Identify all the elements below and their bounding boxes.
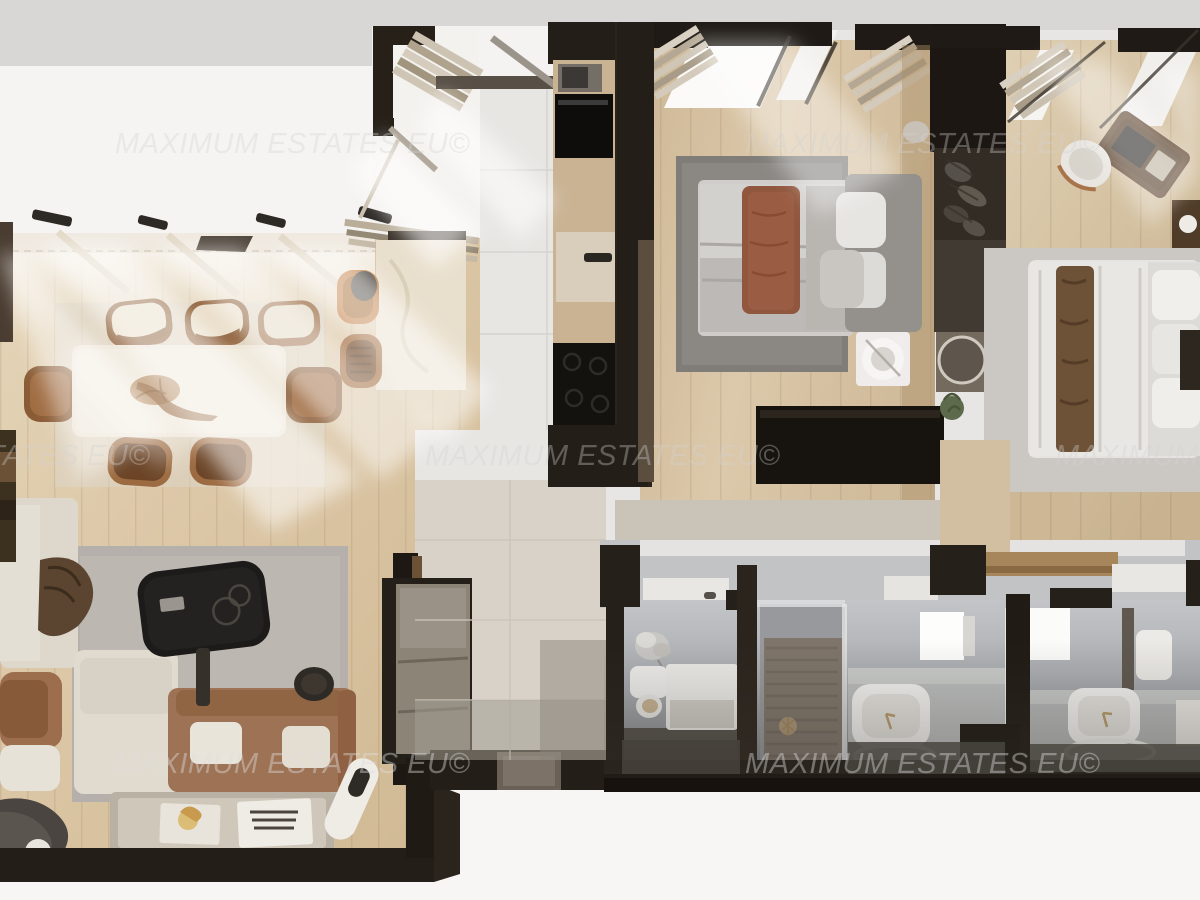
svg-text:MAXIMUM ESTATES EU©: MAXIMUM ESTATES EU©	[115, 128, 470, 160]
svg-text:MAXIMUM ESTATES EU©: MAXIMUM ESTATES EU©	[425, 440, 780, 472]
svg-text:MAXIMUM ESTATES EU©: MAXIMUM ESTATES EU©	[0, 440, 150, 472]
svg-text:MAXIMUM ESTATES EU©: MAXIMUM ESTATES EU©	[115, 748, 470, 780]
svg-text:MAXIMUM ESTATES EU©: MAXIMUM ESTATES EU©	[745, 748, 1100, 780]
svg-text:MAXIMUM ESTATES EU©: MAXIMUM ESTATES EU©	[745, 128, 1100, 160]
svg-text:MAXIMUM ESTATES EU©: MAXIMUM ESTATES EU©	[1055, 440, 1200, 472]
